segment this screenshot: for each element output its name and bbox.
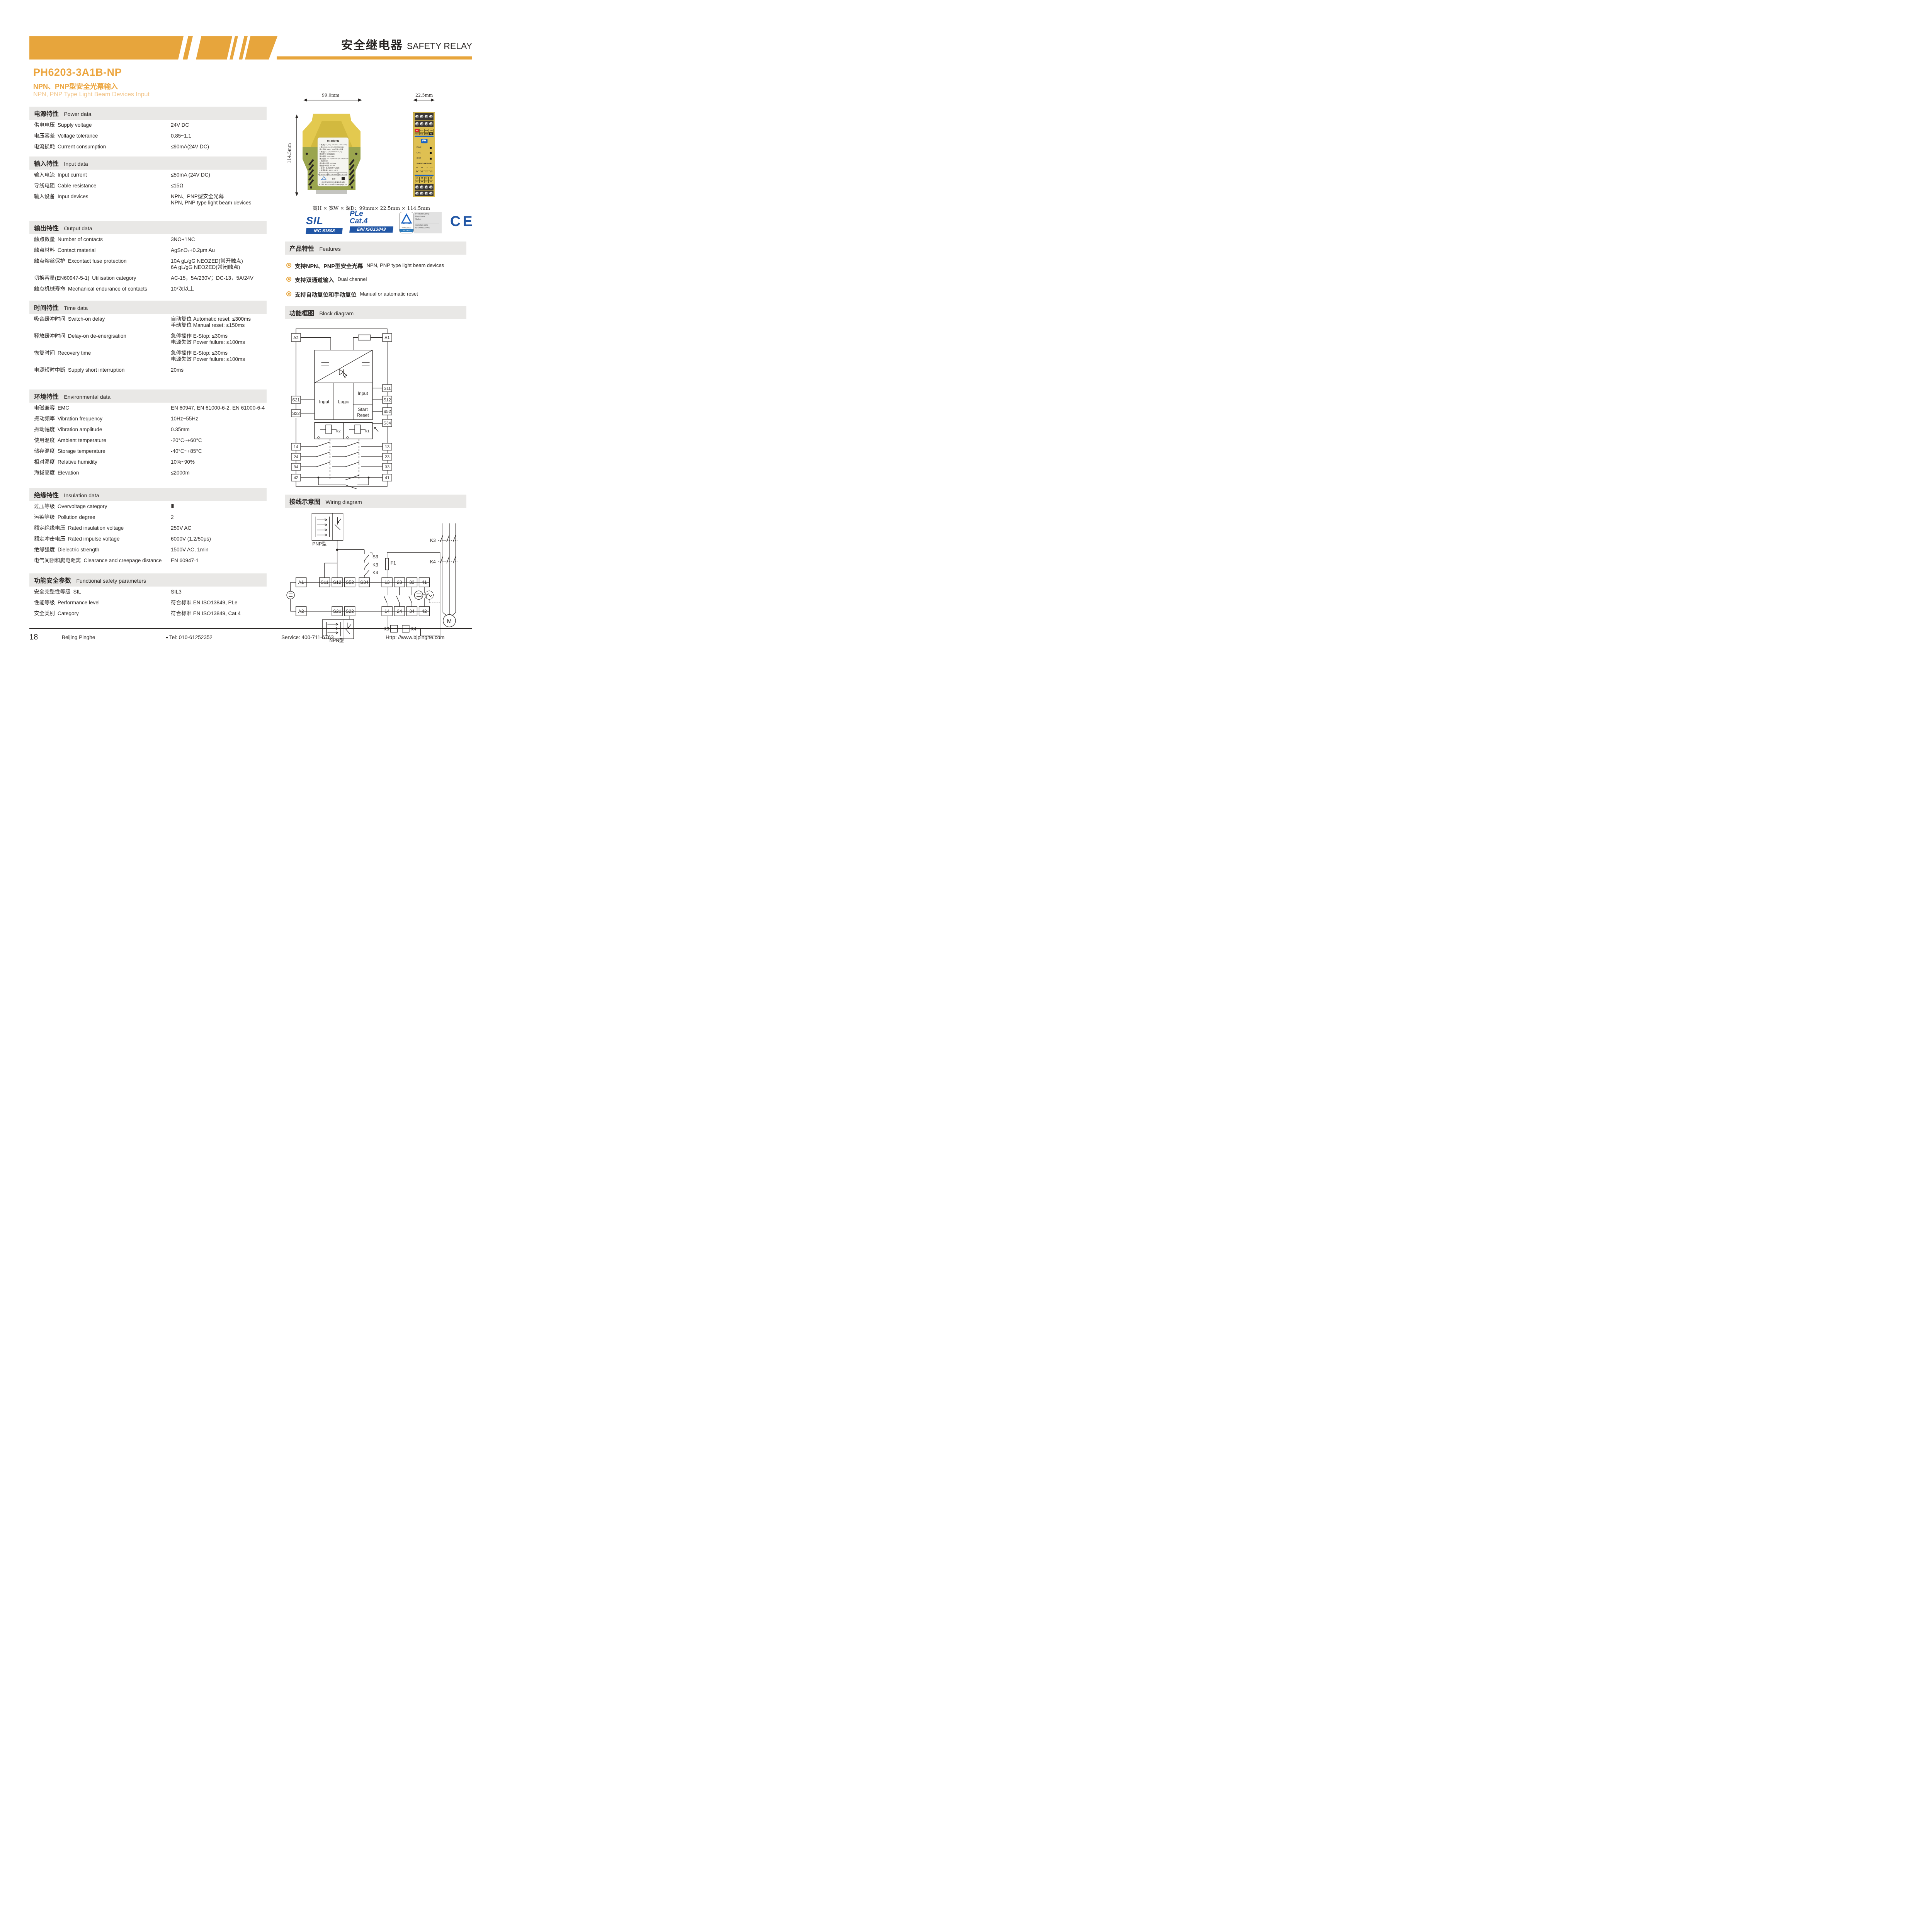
label-en: Category (58, 611, 79, 616)
spec-value: 3NO+1NC (171, 236, 267, 243)
section-title-cn: 接线示意图 (289, 499, 320, 505)
spec-value: EN 60947-1 (171, 558, 267, 564)
section-environment: 环境特性 Environmental data 电磁兼容EMC EN 60947… (29, 389, 267, 478)
product-model: PH6203-3A1B-NP (33, 66, 122, 78)
svg-text:输入设备：NPN、PNP型安全光幕: 输入设备：NPN、PNP型安全光幕 (320, 148, 343, 150)
contact-num: 14 (425, 171, 427, 173)
terminal-block (415, 191, 434, 196)
svg-text:触点容量：AC-15,5A/230V;DC-13,5A/24: 触点容量：AC-15,5A/230V;DC-13,5A/24V (320, 157, 349, 160)
label-cn: 额定冲击电压 (34, 536, 65, 542)
page-title: 安全继电器 SAFETY RELAY (341, 36, 472, 53)
spec-row: 电气间隙和爬电距离Clearance and creepage distance… (29, 555, 267, 566)
block-diagram-box-labels: Input Logic Input Start Reset K2 K1 (319, 391, 370, 434)
spec-label: 切换容量(EN60947-5-1)Utilisation category (34, 275, 171, 281)
sil-badge: SIL IEC 61508 (306, 215, 342, 234)
section-header: 输入特性 Input data (29, 156, 267, 170)
wiring-input-chain (325, 541, 372, 578)
feature-cn: 支持NPN、PNP型安全光幕 (295, 262, 363, 270)
spec-row: 储存温度Storage temperature -40°C~+85°C (29, 446, 267, 457)
label-cn: 电流损耗 (34, 144, 55, 150)
section-title-en: Wiring diagram (325, 499, 362, 505)
spec-column: 电源特性 Power data 供电电压Supply voltage 24V D… (29, 107, 267, 619)
value-line: -40°C~+85°C (171, 448, 267, 454)
label-cn: 电源短时中断 (34, 367, 65, 373)
label-cn: 额定绝缘电压 (34, 525, 65, 531)
section-title-en: Features (319, 246, 340, 252)
label-en: Utilisation category (92, 275, 136, 281)
contact-linkage (416, 170, 432, 170)
terminal-label: S11 (424, 132, 429, 136)
value-line: 电源失效 Power failure: ≤100ms (171, 356, 267, 362)
svg-text:34: 34 (294, 465, 298, 469)
label-cn: 储存温度 (34, 448, 55, 454)
label-cn: 安全类别 (34, 611, 55, 616)
contact-num: 34 (421, 171, 423, 173)
label-en: Supply short interruption (68, 367, 124, 373)
section-header: 时间特性 Time data (29, 301, 267, 314)
wiring-diagram-header: 接线示意图 Wiring diagram (285, 495, 466, 508)
svg-text:S21: S21 (333, 609, 342, 614)
value-line: ≤50mA (24V DC) (171, 172, 267, 178)
dimension-depth: 22.5mm (415, 93, 433, 98)
section-power: 电源特性 Power data 供电电压Supply voltage 24V D… (29, 107, 267, 152)
ple-text: PLe (350, 210, 393, 218)
spec-row: 触点数量Number of contacts 3NO+1NC (29, 234, 267, 245)
section-header: 输出特性 Output data (29, 221, 267, 234)
wiring-component-labels: PNP型 NPN型 S3 K3 K4 F1 K3 K4 K3 K4 M (312, 538, 452, 643)
contact-num: 42 (416, 171, 418, 173)
svg-text:14: 14 (294, 445, 298, 449)
svg-text:● 复位：自动复位和手动复位: ● 复位：自动复位和手动复位 (320, 167, 340, 169)
table-cell: 34 (420, 180, 424, 184)
table-cell: 42 (415, 180, 420, 184)
screw-icon (429, 115, 433, 118)
spec-row: 切换容量(EN60947-5-1)Utilisation category AC… (29, 273, 267, 284)
header-band (29, 36, 277, 60)
svg-text:23: 23 (385, 455, 389, 459)
tuv-name: TÜVRheinland (400, 227, 413, 229)
section-time: 时间特性 Time data 吸合缓冲时间Switch-on delay 自动复… (29, 301, 267, 376)
label-en: Voltage tolerance (58, 133, 98, 139)
table-cell: 13 (424, 177, 429, 180)
din-rail-foot (316, 190, 347, 194)
spec-label: 导线电阻Cable resistance (34, 183, 171, 189)
wiring-output-contacts (384, 587, 427, 607)
section-header: 绝缘特性 Insulation data (29, 488, 267, 501)
divider (415, 223, 439, 223)
label-cn: 绝缘强度 (34, 547, 55, 553)
label-cn: 切换容量(EN60947-5-1) (34, 275, 89, 281)
screw-icon (429, 185, 433, 189)
section-title-en: Input data (64, 161, 88, 167)
svg-text:S52: S52 (346, 580, 354, 585)
datasheet-page: 安全继电器 SAFETY RELAY PH6203-3A1B-NP NPN、PN… (0, 0, 493, 664)
label-cn: 电压容差 (34, 133, 55, 139)
spec-value: SIL3 (171, 589, 267, 595)
svg-text:42: 42 (294, 476, 298, 480)
spec-value: ≤2000m (171, 470, 267, 476)
label-en: Relative humidity (58, 459, 97, 465)
label-en: Switch-on delay (68, 316, 105, 322)
spec-row: 海拔高度Elevation ≤2000m (29, 468, 267, 478)
label-cn: 污染等级 (34, 514, 55, 520)
brand-logo: PH (421, 139, 427, 143)
terminal-block (415, 184, 434, 190)
value-line: ≤2000m (171, 470, 267, 476)
dimension-height: 114.5mm (287, 143, 292, 163)
section-title-cn: 环境特性 (34, 394, 59, 400)
footer-company: Beijing Pinghe (62, 634, 95, 640)
label-en: Current consumption (58, 144, 106, 150)
contact-num: 33 (421, 167, 423, 169)
side-label-support: 技术支持: 400-711-6763 网址: www.bjpinghe.com (319, 184, 347, 185)
feature-bullet-icon (286, 291, 291, 296)
spec-label: 额定绝缘电压Rated insulation voltage (34, 525, 171, 531)
spec-row: 输入电流Input current ≤50mA (24V DC) (29, 170, 267, 180)
spec-row: 相对湿度Relative humidity 10%~90% (29, 457, 267, 468)
section-header: 环境特性 Environmental data (29, 389, 267, 403)
contact-num: 23 (430, 167, 432, 169)
label-en: Mechanical endurance of contacts (68, 286, 147, 292)
spec-label: 输入设备Input devices (34, 194, 171, 206)
svg-text:33: 33 (409, 580, 415, 585)
svg-text:PNP型: PNP型 (312, 541, 327, 547)
dimension-arrow (295, 114, 299, 196)
terminal-table: 41331314 42342324 (415, 177, 433, 183)
spec-value: 10%~90% (171, 459, 267, 465)
label-en: Input devices (58, 194, 88, 199)
spec-label: 使用温度Ambient temperature (34, 437, 171, 444)
svg-text:K4: K4 (430, 559, 436, 565)
svg-text:吸合缓冲时间：≤300ms: 吸合缓冲时间：≤300ms (320, 162, 336, 164)
svg-text:A2: A2 (293, 336, 298, 340)
label-en: Rated impulse voltage (68, 536, 120, 542)
features-header: 产品特性 Features (285, 241, 466, 255)
value-line: EN 60947-1 (171, 558, 267, 564)
value-line: 20ms (171, 367, 267, 373)
screw-icon (415, 122, 419, 126)
svg-text:● 电源(A1+,A2-)：24V DC(-15%~+10%: ● 电源(A1+,A2-)：24V DC(-15%~+10%) (320, 143, 347, 146)
label-en: Contact material (58, 247, 95, 253)
svg-text:Input: Input (319, 399, 330, 405)
spec-label: 恢复时间Recovery time (34, 350, 171, 362)
contact-numbers-bottom: 42341424 (416, 171, 432, 173)
tuv-line: Product Safety (415, 213, 442, 216)
value-line: 符合标准 EN ISO13849, Cat.4 (171, 611, 267, 617)
svg-text:F1: F1 (391, 560, 396, 566)
spec-row: 振动幅度Vibration amplitude 0.35mm (29, 424, 267, 435)
label-en: Dielectric strength (58, 547, 99, 553)
svg-text:S12: S12 (383, 398, 391, 403)
label-en: Rated insulation voltage (68, 525, 124, 531)
spec-row: 供电电压Supply voltage 24V DC (29, 120, 267, 131)
value-line: 1500V AC, 1min (171, 547, 267, 553)
spec-value: 10Hz~55Hz (171, 416, 267, 422)
spec-row: 导线电阻Cable resistance ≤15Ω (29, 180, 267, 191)
spec-row: 电压容差Voltage tolerance 0.85~1.1 (29, 131, 267, 141)
svg-text:41: 41 (385, 476, 389, 480)
svg-text:S34: S34 (360, 580, 369, 585)
section-safety: 功能安全参数 Functional safety parameters 安全完整… (29, 573, 267, 619)
screw-icon (425, 115, 428, 118)
value-line: 3NO+1NC (171, 236, 267, 243)
svg-text:● 输入(S11,S12,S21,S22,S34,S52)：: ● 输入(S11,S12,S21,S22,S34,S52)： (320, 146, 345, 148)
footer-tel: Tel: 010-61252352 (166, 634, 213, 640)
table-cell: 33 (420, 177, 424, 180)
svg-text:Cat 4 ISO 13849: Cat 4 ISO 13849 (338, 173, 347, 175)
value-line: 6000V (1.2/50μs) (171, 536, 267, 542)
spec-row: 安全完整性等级SIL SIL3 (29, 587, 267, 597)
section-output: 输出特性 Output data 触点数量Number of contacts … (29, 221, 267, 294)
svg-text:24: 24 (397, 609, 402, 614)
terminal-label: S12 (419, 132, 424, 136)
spec-label: 电磁兼容EMC (34, 405, 171, 411)
spec-row: 输入设备Input devices NPN、PNP型安全光幕NPN, PNP t… (29, 191, 267, 208)
svg-text:触点数量：3NO+1NC: 触点数量：3NO+1NC (320, 155, 335, 157)
spec-value: 符合标准 EN ISO13849, PLe (171, 600, 267, 606)
value-line: 250V AC (171, 525, 267, 531)
feature-cn: 支持双通道输入 (295, 276, 334, 284)
terminal-label: S34 (415, 132, 419, 136)
screw-icon (429, 122, 433, 126)
section-title-cn: 功能框图 (289, 310, 314, 317)
block-diagram-wires (296, 329, 387, 489)
label-cn: 振动频率 (34, 416, 55, 422)
svg-text:13: 13 (384, 580, 390, 585)
value-line: 自动复位 Automatic reset: ≤300ms (171, 316, 267, 322)
led-indicator-icon (430, 152, 432, 154)
tuv-text-panel: Product Safety Functional Safety www.tuv… (414, 212, 442, 233)
value-line: 0.85~1.1 (171, 133, 267, 139)
section-title-cn: 电源特性 (34, 111, 59, 117)
feature-en: Manual or automatic reset (360, 291, 418, 297)
tuv-line: Functional (415, 216, 442, 218)
product-subtitle-en: NPN, PNP Type Light Beam Devices Input (33, 91, 150, 98)
label-cn: 输入电流 (34, 172, 55, 178)
value-line: SIL3 (171, 589, 267, 595)
spec-value: NPN、PNP型安全光幕NPN, PNP type light beam dev… (171, 194, 267, 206)
spec-label: 电流损耗Current consumption (34, 144, 171, 150)
spec-value: 6000V (1.2/50μs) (171, 536, 267, 542)
spec-value: EN 60947, EN 61000-6-2, EN 61000-6-4 (171, 405, 267, 411)
spec-label: 额定冲击电压Rated impulse voltage (34, 536, 171, 542)
led-label: CH1 (417, 152, 421, 154)
svg-text:33: 33 (385, 465, 389, 469)
footer-divider (29, 628, 472, 629)
feature-en: Dual channel (338, 276, 367, 282)
svg-text:23: 23 (397, 580, 402, 585)
value-line: NPN、PNP型安全光幕 (171, 194, 267, 200)
svg-text:SIL3 SC3 IEC 61508: SIL3 SC3 IEC 61508 (318, 173, 329, 175)
product-subtitle-cn: NPN、PNP型安全光幕输入 (33, 81, 118, 91)
svg-text:Input: Input (358, 391, 368, 396)
svg-text:K1: K1 (365, 429, 370, 434)
block-diagram-terminal-labels: A2 A1 S21 S22 S11 S12 S52 S34 14 24 34 4… (292, 336, 391, 481)
svg-text:K3: K3 (430, 538, 436, 543)
svg-text:Logic: Logic (338, 399, 349, 405)
label-en: Ambient temperature (58, 437, 106, 443)
label-en: Pollution degree (58, 514, 95, 520)
label-en: Overvoltage category (58, 503, 107, 509)
spec-row: 额定冲击电压Rated impulse voltage 6000V (1.2/5… (29, 534, 267, 544)
spec-row: 恢复时间Recovery time 急停操作 E-Stop: ≤30ms电源失效… (29, 348, 267, 365)
feature-item: 支持自动复位和手动复位 Manual or automatic reset (286, 291, 418, 299)
dimension-arrow (413, 98, 435, 102)
value-line: Ⅲ (171, 503, 267, 510)
section-title-en: Block diagram (319, 310, 354, 316)
footer-web: Http: //www.bjpinghe.com (386, 634, 444, 640)
svg-text:输出信号：继电器输出: 输出信号：继电器输出 (320, 153, 335, 155)
label-cn: 触点数量 (34, 236, 55, 242)
section-insulation: 绝缘特性 Insulation data 过压等级Overvoltage cat… (29, 488, 267, 566)
feature-en: NPN, PNP type light beam devices (366, 262, 444, 268)
svg-text:M: M (447, 618, 452, 624)
label-cn: 相对湿度 (34, 459, 55, 465)
value-line: 急停操作 E-Stop: ≤30ms (171, 333, 267, 339)
wiring-ac-source (414, 591, 440, 603)
label-cn: 性能等级 (34, 600, 55, 605)
spec-value: 24V DC (171, 122, 267, 128)
block-diagram: A2 A1 S21 S22 S11 S12 S52 S34 14 24 34 4… (289, 323, 394, 489)
terminal-label: A2 (429, 132, 434, 136)
svg-text:A1: A1 (384, 336, 389, 340)
spec-label: 储存温度Storage temperature (34, 448, 171, 454)
spec-row: 触点熔丝保护Excontact fuse protection 10A gL/g… (29, 256, 267, 273)
spec-label: 释放缓冲时间Delay-on de-energisation (34, 333, 171, 345)
section-title-cn: 绝缘特性 (34, 492, 59, 499)
contact-num: 24 (430, 171, 432, 173)
table-cell: 24 (429, 180, 433, 184)
label-en: Input current (58, 172, 87, 178)
label-cn: 过压等级 (34, 503, 55, 509)
section-title-en: Environmental data (64, 394, 111, 400)
spec-label: 输入电流Input current (34, 172, 171, 178)
section-title-cn: 输入特性 (34, 161, 59, 167)
value-line: 24V DC (171, 122, 267, 128)
spec-value: 10A gL/gG NEOZED(常开触点)6A gL/gG NEOZED(常闭… (171, 258, 267, 270)
page-title-cn: 安全继电器 (341, 36, 403, 53)
block-diagram-dashed-links (330, 439, 359, 481)
qr-code-icon (342, 177, 345, 180)
screw-icon (420, 115, 423, 118)
footer-tel-text: Tel: 010-61252352 (169, 634, 213, 640)
spec-value: 符合标准 EN ISO13849, Cat.4 (171, 611, 267, 617)
table-cell: 14 (429, 177, 433, 180)
contact-numbers-top: 41331323 (416, 167, 432, 169)
section-title-cn: 功能安全参数 (34, 578, 71, 584)
value-line: 10%~90% (171, 459, 267, 465)
ce-mark-small: CE (332, 178, 336, 181)
value-line: 10Hz~55Hz (171, 416, 267, 422)
label-cn: 使用温度 (34, 437, 55, 443)
svg-text:S3: S3 (372, 554, 378, 560)
feature-bullet-icon (286, 277, 291, 282)
label-en: Recovery time (58, 350, 91, 356)
spec-row: 触点机械寿命Mechanical endurance of contacts 1… (29, 284, 267, 294)
spec-row: 性能等级Performance level 符合标准 EN ISO13849, … (29, 597, 267, 608)
screw-icon (415, 192, 419, 195)
tuv-id: ID 0600000000 (415, 227, 442, 230)
value-line: AgSnO₂+0.2μm Au (171, 247, 267, 253)
tuv-triangle-icon (400, 213, 413, 225)
svg-text:S11: S11 (384, 386, 391, 391)
tuv-url: www.tuv.com (415, 224, 442, 227)
label-cn: 输入设备 (34, 194, 55, 199)
header-underline (277, 56, 472, 60)
spec-value: Ⅲ (171, 503, 267, 510)
screw-icon (420, 122, 423, 126)
screw-icon (429, 192, 433, 195)
spec-row: 电磁兼容EMC EN 60947, EN 61000-6-2, EN 61000… (29, 403, 267, 413)
terminal-labels-top: A1S22S21S52 S34S12S11A2 (415, 129, 434, 135)
ple-standard: EN/ ISO13849 (349, 226, 393, 233)
svg-text:S11: S11 (321, 580, 329, 585)
svg-text:● 使用温度：-20°C~+60°C: ● 使用温度：-20°C~+60°C (320, 169, 338, 171)
page-title-en: SAFETY RELAY (407, 41, 472, 51)
label-cn: 触点材料 (34, 247, 55, 253)
spec-label: 吸合缓冲时间Switch-on delay (34, 316, 171, 328)
cat-text: Cat.4 (350, 218, 393, 225)
led-row: CH2 (417, 157, 432, 160)
spec-row: 过压等级Overvoltage category Ⅲ (29, 501, 267, 512)
value-line: 符合标准 EN ISO13849, PLe (171, 600, 267, 606)
label-cn: 供电电压 (34, 122, 55, 128)
spec-value: -40°C~+85°C (171, 448, 267, 454)
spec-value: 自动复位 Automatic reset: ≤300ms手动复位 Manual … (171, 316, 267, 328)
svg-text:42: 42 (422, 609, 427, 614)
label-cn: 电气间隙和爬电距离 (34, 558, 81, 563)
svg-text:S52: S52 (383, 410, 391, 414)
section-header: 功能安全参数 Functional safety parameters (29, 573, 267, 587)
svg-text:34: 34 (409, 609, 415, 614)
spec-label: 安全类别Category (34, 611, 171, 617)
side-label-company: 北京平和创业科技发展有限公司 (321, 181, 345, 184)
screw-icon (415, 185, 419, 189)
svg-text:● 响应时间：: ● 响应时间： (320, 160, 329, 162)
spec-label: 过压等级Overvoltage category (34, 503, 171, 510)
spec-row: 安全类别Category 符合标准 EN ISO13849, Cat.4 (29, 608, 267, 619)
label-en: Vibration amplitude (58, 427, 102, 432)
label-en: EMC (58, 405, 69, 411)
label-cn: 振动幅度 (34, 427, 55, 432)
svg-text:A1: A1 (298, 580, 304, 585)
label-cn: 吸合缓冲时间 (34, 316, 65, 322)
screw-icon (420, 192, 423, 195)
spec-value: ≤90mA(24V DC) (171, 144, 267, 150)
spec-label: 触点熔丝保护Excontact fuse protection (34, 258, 171, 270)
tuv-logo-panel: TÜVRheinland CERTIFIED (399, 212, 414, 233)
spec-value: 0.35mm (171, 427, 267, 433)
value-line: ≤15Ω (171, 183, 267, 189)
spec-label: 触点材料Contact material (34, 247, 171, 253)
value-line: -20°C~+60°C (171, 437, 267, 444)
svg-text:41: 41 (422, 580, 427, 585)
value-line: 10A gL/gG NEOZED(常开触点) (171, 258, 267, 264)
svg-text:14: 14 (384, 609, 390, 614)
value-line: AC-15，5A/230V；DC-13，5A/24V (171, 275, 267, 281)
ple-badge: PLe Cat.4 EN/ ISO13849 (350, 210, 393, 233)
relay-side-view: PH 北京平和 ● 电源(A1+,A2-)：24V DC(-15%~+10%) … (303, 113, 361, 196)
spec-value: 急停操作 E-Stop: ≤30ms电源失效 Power failure: ≤1… (171, 350, 267, 362)
wiring-motor-circuit (438, 523, 457, 627)
ce-mark: CE (450, 213, 474, 230)
svg-text:K2: K2 (336, 429, 341, 434)
sil-text: SIL (306, 215, 342, 227)
section-title-cn: 时间特性 (34, 305, 59, 311)
value-line: 2 (171, 514, 267, 520)
svg-text:S12: S12 (333, 580, 342, 585)
label-en: Excontact fuse protection (68, 258, 127, 264)
